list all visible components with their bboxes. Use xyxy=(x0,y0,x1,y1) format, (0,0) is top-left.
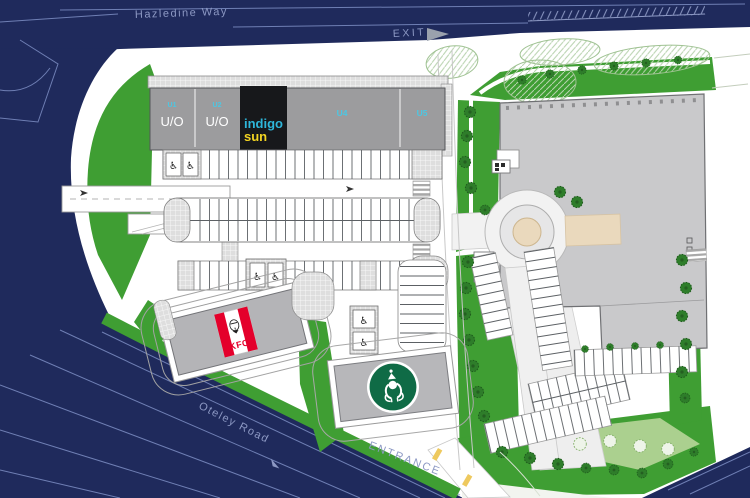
pedestrian-crossing-1 xyxy=(413,181,430,196)
retail-terrace: U1 U/O U2 U/O indigo sun U4 U5 xyxy=(150,86,445,150)
exit-label: EXIT xyxy=(393,26,427,40)
disabled-bay-icon: ♿ xyxy=(360,338,369,349)
unit-u1-label: U1 xyxy=(168,102,177,109)
kfc-paver-island xyxy=(292,272,334,320)
unit-u1-status: U/O xyxy=(160,114,183,129)
right-site xyxy=(424,36,750,498)
unit-u2-label: U2 xyxy=(213,102,222,109)
paved-crossing-strip xyxy=(565,214,621,246)
disabled-island: ♿ ♿ xyxy=(350,306,378,354)
unit-u2-status: U/O xyxy=(205,114,228,129)
disabled-bay-icon: ♿ xyxy=(360,316,369,327)
service-yard-strip xyxy=(148,76,448,88)
site-plan: U1 U/O U2 U/O indigo sun U4 U5 ♿ ♿ xyxy=(0,0,750,498)
disabled-bay-icon: ♿ xyxy=(186,161,195,172)
parking-row-2 xyxy=(164,198,440,242)
parking-row-1: ♿ ♿ xyxy=(163,150,442,179)
disabled-bay-icon: ♿ xyxy=(169,161,178,172)
roundabout-island xyxy=(513,218,541,246)
indigo-sun-line2: sun xyxy=(244,129,267,144)
parking-column-east xyxy=(398,260,446,352)
unit-u5-label: U5 xyxy=(417,108,428,118)
unit-u4-label: U4 xyxy=(337,108,348,118)
